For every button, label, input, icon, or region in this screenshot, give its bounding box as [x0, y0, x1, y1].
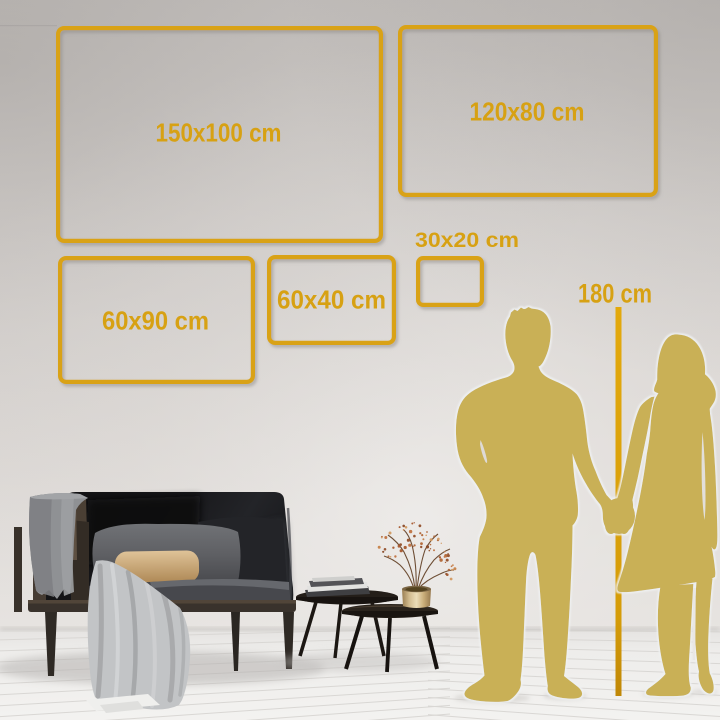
svg-text:30x20 cm: 30x20 cm	[415, 228, 519, 252]
svg-text:120x80 cm: 120x80 cm	[470, 97, 585, 127]
svg-text:60x40 cm: 60x40 cm	[277, 285, 386, 315]
svg-text:150x100 cm: 150x100 cm	[156, 118, 282, 148]
svg-text:60x90 cm: 60x90 cm	[102, 306, 209, 336]
svg-text:180 cm: 180 cm	[578, 279, 652, 309]
